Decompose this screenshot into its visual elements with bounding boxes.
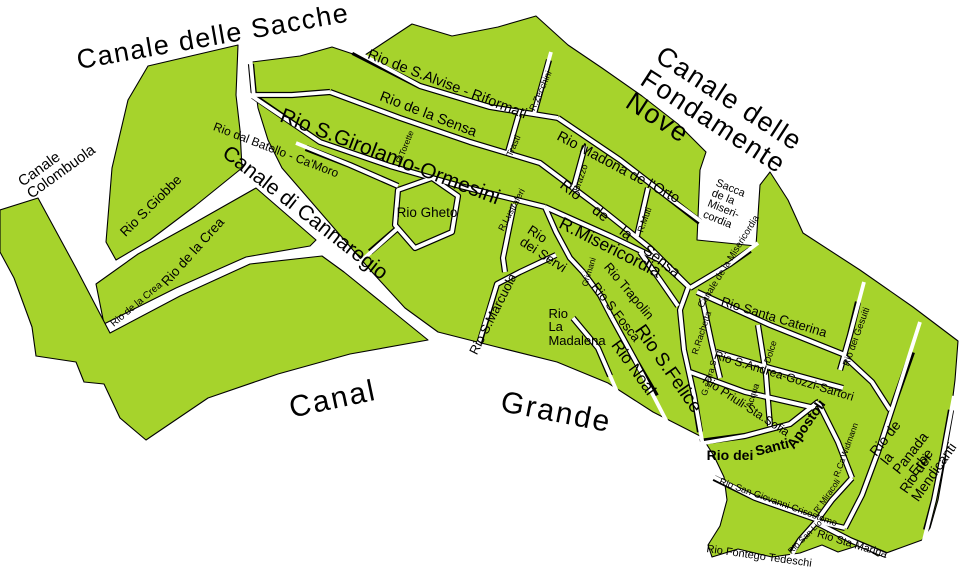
- canal-map-drawing: [0, 0, 960, 574]
- venice-cannaregio-canal-map: Canale delle SaccheCanale delle Fondamen…: [0, 0, 960, 574]
